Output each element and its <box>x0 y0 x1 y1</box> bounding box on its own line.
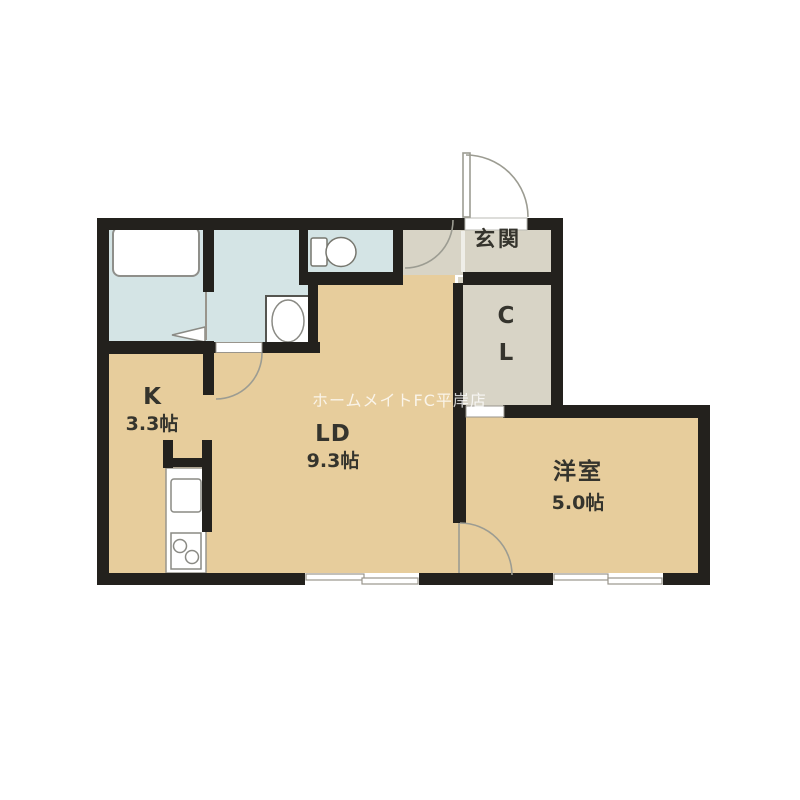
wall-kitchen-stub <box>203 350 214 395</box>
kitchen-counter <box>166 468 206 573</box>
room-label-closet-line1: C <box>482 304 530 329</box>
wall-bath-divider <box>203 230 214 292</box>
room-size-living-dining: 9.3帖 <box>283 451 383 472</box>
wall-counter-bar <box>163 458 212 467</box>
room-size-kitchen: 3.3帖 <box>102 414 202 435</box>
wall-counter-right <box>202 440 212 532</box>
room-label-kitchen: K <box>112 385 192 410</box>
kitchen-sink-icon <box>171 479 201 512</box>
toilet-icon <box>311 238 356 267</box>
entrance-door-arc <box>466 155 528 217</box>
wall-right-upper <box>551 218 563 418</box>
wall-left <box>97 218 109 585</box>
wall-toilet-bottom <box>299 272 403 285</box>
western-window <box>553 573 663 585</box>
room-label-closet-line2: L <box>482 341 530 366</box>
room-label-western-room: 洋室 <box>528 460 628 485</box>
watermark-text: ホームメイトFC平岸店 <box>312 387 487 411</box>
wall-western-top <box>503 405 710 418</box>
gas-stove-icon <box>171 533 201 569</box>
wall-ld-western-divider <box>453 405 466 523</box>
entrance-door-leaf <box>463 153 470 217</box>
wall-right-lower <box>698 405 710 585</box>
ld-window <box>305 573 419 585</box>
room-size-western-room: 5.0帖 <box>528 493 628 514</box>
washbasin-icon <box>266 296 310 346</box>
floor-plan-page: 玄関 C L K 3.3帖 LD 9.3帖 洋室 5.0帖 ホームメイトFC平岸… <box>0 0 800 800</box>
floor-corridor <box>315 275 455 350</box>
wall-bath-bottom <box>97 341 214 354</box>
wall-entrance-bottom <box>463 272 563 285</box>
bathtub-icon <box>113 227 199 276</box>
room-label-living-dining: LD <box>283 422 383 447</box>
washroom-door-panel <box>216 343 262 353</box>
room-label-entrance: 玄関 <box>455 228 541 251</box>
floor-kitchen-living <box>105 345 455 577</box>
